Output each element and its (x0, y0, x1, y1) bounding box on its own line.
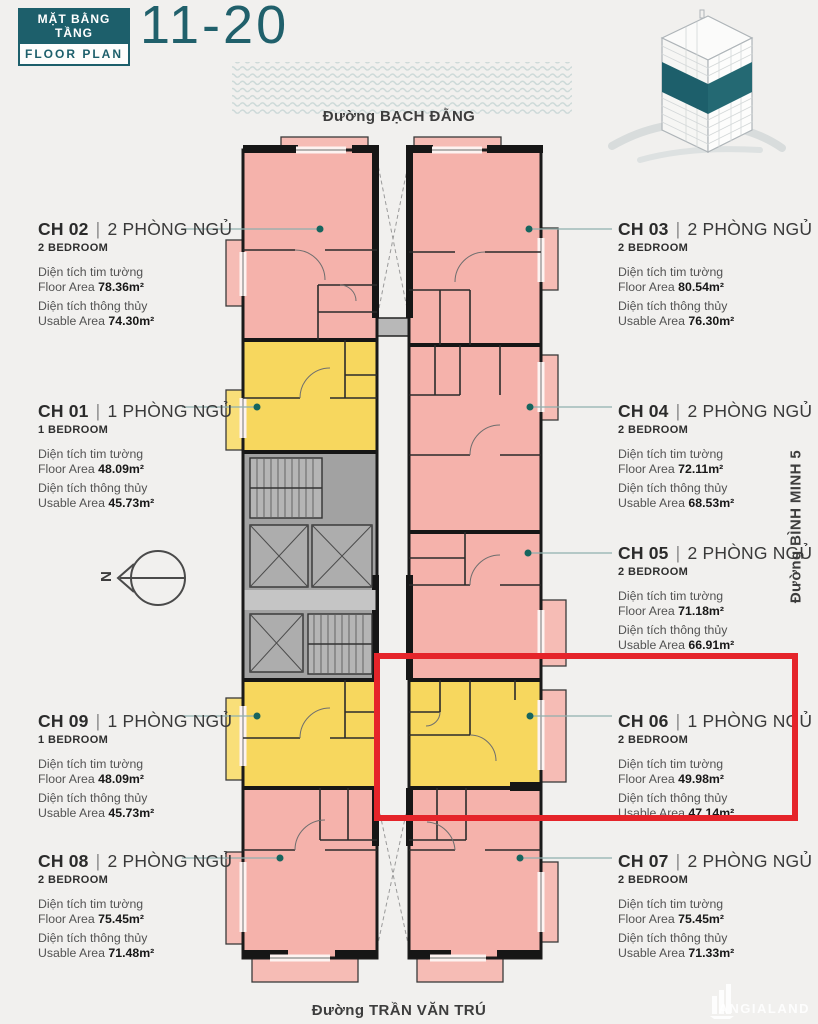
watermark: ANGIALAND (719, 1001, 811, 1016)
unit-subtitle: 1 BEDROOM (38, 424, 238, 436)
street-label-bottom: Đường TRẦN VĂN TRÚ (0, 1002, 818, 1019)
unit-title: CH 02 | 2 PHÒNG NGỦ (38, 219, 238, 240)
core-corridor (245, 590, 376, 610)
unit-label-ch02: CH 02 | 2 PHÒNG NGỦ 2 BEDROOM Diện tích … (38, 219, 238, 328)
usable-area-block: Diện tích thông thủyUsable Area 74.30m² (38, 299, 238, 328)
unit-label-ch01: CH 01 | 1 PHÒNG NGỦ 1 BEDROOM Diện tích … (38, 401, 238, 510)
highlight-box-ch06 (374, 653, 798, 821)
unit-subtitle: 2 BEDROOM (38, 242, 238, 254)
building-illustration (612, 10, 782, 160)
unit-ch03-shape (409, 150, 541, 345)
badge-title-vi: MẶT BẰNG TẦNG (18, 8, 130, 44)
gap-braces (377, 160, 409, 948)
unit-title: CH 04 | 2 PHÒNG NGỦ (618, 401, 818, 422)
usable-area-block: Diện tích thông thủyUsable Area 71.48m² (38, 931, 238, 960)
plan-badge: MẶT BẰNG TẦNG FLOOR PLAN (18, 8, 130, 66)
unit-title: CH 01 | 1 PHÒNG NGỦ (38, 401, 238, 422)
right-wing (409, 150, 541, 958)
unit-ch01-shape (243, 340, 377, 452)
usable-area-block: Diện tích thông thủyUsable Area 66.91m² (618, 623, 818, 652)
north-letter: N (97, 571, 114, 582)
usable-area-block: Diện tích thông thủyUsable Area 68.53m² (618, 481, 818, 510)
floor-area-block: Diện tích tim tườngFloor Area 75.45m² (618, 897, 818, 926)
floor-area-block: Diện tích tim tườngFloor Area 80.54m² (618, 265, 818, 294)
floor-range: 11-20 (140, 0, 289, 56)
unit-subtitle: 2 BEDROOM (618, 424, 818, 436)
unit-ch09-shape (243, 680, 377, 788)
unit-label-ch08: CH 08 | 2 PHÒNG NGỦ 2 BEDROOM Diện tích … (38, 851, 238, 960)
unit-title: CH 05 | 2 PHÒNG NGỦ (618, 543, 818, 564)
unit-label-ch05: CH 05 | 2 PHÒNG NGỦ 2 BEDROOM Diện tích … (618, 543, 818, 652)
floor-area-block: Diện tích tim tườngFloor Area 72.11m² (618, 447, 818, 476)
unit-title: CH 08 | 2 PHÒNG NGỦ (38, 851, 238, 872)
unit-ch08-shape (243, 788, 377, 958)
street-label-top: Đường BẠCH ĐẰNG (0, 108, 818, 125)
wave-pattern (232, 62, 572, 114)
floor-area-block: Diện tích tim tườngFloor Area 48.09m² (38, 447, 238, 476)
north-compass (118, 551, 185, 605)
unit-label-ch03: CH 03 | 2 PHÒNG NGỦ 2 BEDROOM Diện tích … (618, 219, 818, 328)
unit-title: CH 09 | 1 PHÒNG NGỦ (38, 711, 238, 732)
floor-area-block: Diện tích tim tườngFloor Area 71.18m² (618, 589, 818, 618)
floor-area-block: Diện tích tim tườngFloor Area 75.45m² (38, 897, 238, 926)
unit-label-ch07: CH 07 | 2 PHÒNG NGỦ 2 BEDROOM Diện tích … (618, 851, 818, 960)
usable-area-block: Diện tích thông thủyUsable Area 71.33m² (618, 931, 818, 960)
unit-title: CH 07 | 2 PHÒNG NGỦ (618, 851, 818, 872)
badge-title-en: FLOOR PLAN (18, 44, 130, 66)
unit-subtitle: 2 BEDROOM (618, 874, 818, 886)
unit-subtitle: 2 BEDROOM (618, 242, 818, 254)
floor-area-block: Diện tích tim tườngFloor Area 48.09m² (38, 757, 238, 786)
usable-area-block: Diện tích thông thủyUsable Area 45.73m² (38, 481, 238, 510)
unit-subtitle: 1 BEDROOM (38, 734, 238, 746)
floor-area-block: Diện tích tim tườngFloor Area 78.36m² (38, 265, 238, 294)
unit-subtitle: 2 BEDROOM (618, 566, 818, 578)
unit-label-ch04: CH 04 | 2 PHÒNG NGỦ 2 BEDROOM Diện tích … (618, 401, 818, 510)
link-bridge (377, 318, 409, 336)
usable-area-block: Diện tích thông thủyUsable Area 76.30m² (618, 299, 818, 328)
unit-subtitle: 2 BEDROOM (38, 874, 238, 886)
watermark-text: ANGIALAND (719, 1001, 811, 1016)
unit-title: CH 03 | 2 PHÒNG NGỦ (618, 219, 818, 240)
usable-area-block: Diện tích thông thủyUsable Area 45.73m² (38, 791, 238, 820)
unit-label-ch09: CH 09 | 1 PHÒNG NGỦ 1 BEDROOM Diện tích … (38, 711, 238, 820)
floor-plan (182, 137, 612, 982)
